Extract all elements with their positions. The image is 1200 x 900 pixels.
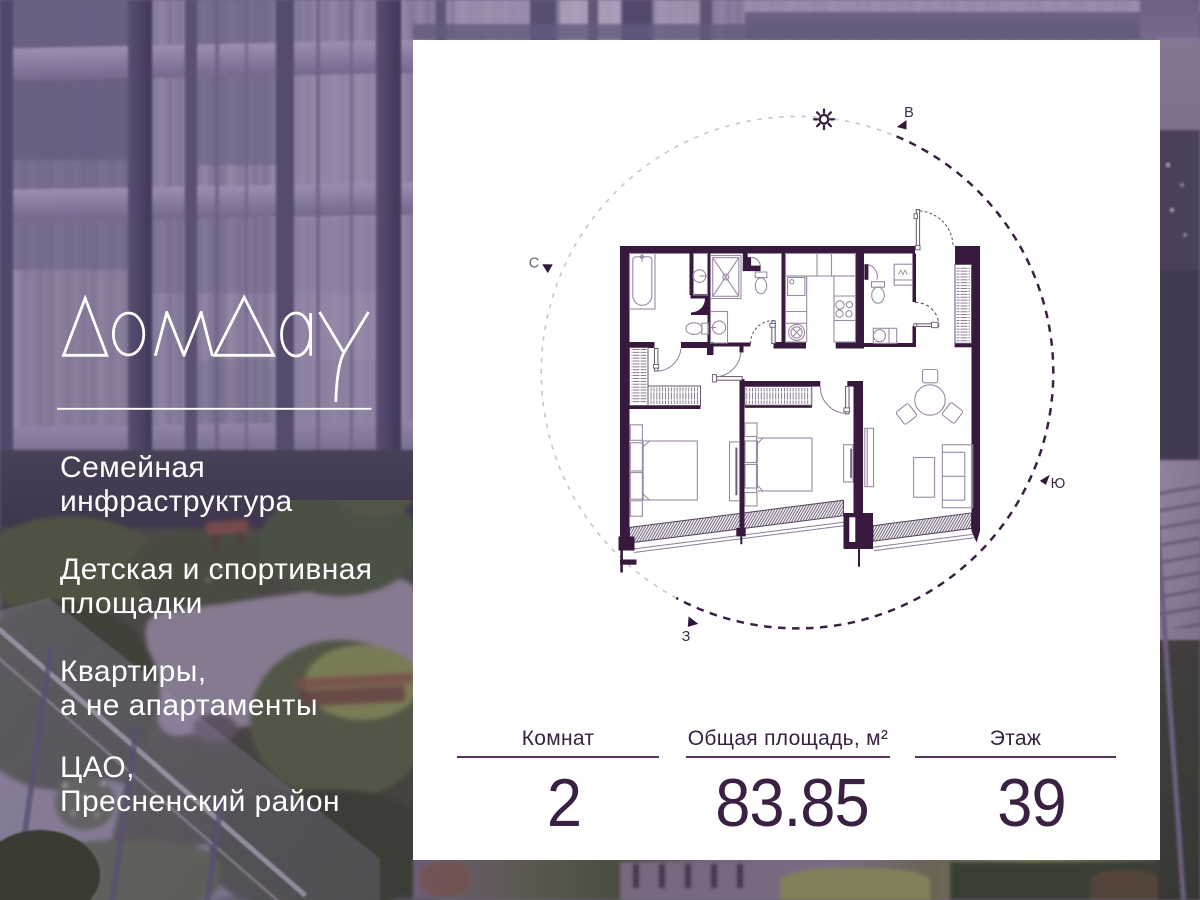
svg-text:З: З	[682, 629, 691, 645]
svg-text:Ю: Ю	[1051, 476, 1066, 492]
svg-text:С: С	[529, 256, 539, 272]
svg-text:В: В	[904, 105, 914, 121]
